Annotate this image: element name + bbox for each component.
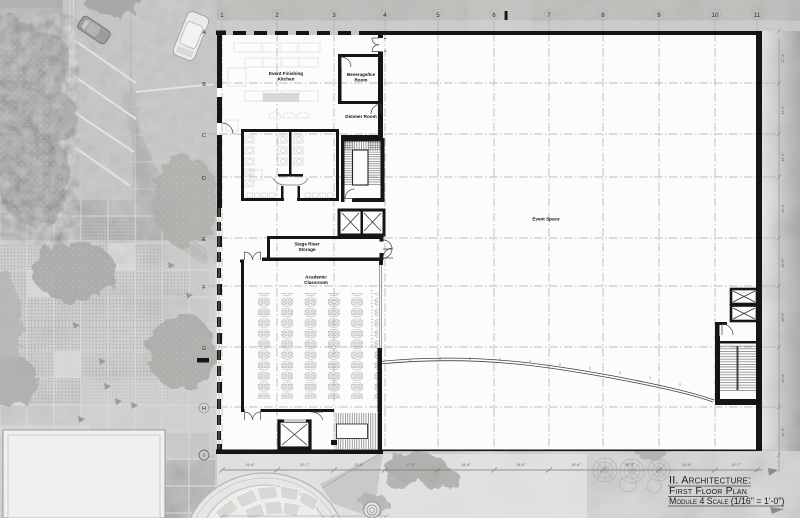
svg-text:13'-6": 13'-6" xyxy=(354,463,364,467)
svg-text:6: 6 xyxy=(492,12,496,19)
svg-text:1: 1 xyxy=(220,12,224,19)
svg-text:Room: Room xyxy=(354,78,367,83)
svg-text:10: 10 xyxy=(712,12,719,19)
svg-text:18'-6": 18'-6" xyxy=(625,463,635,467)
svg-text:Kitchen: Kitchen xyxy=(278,77,295,82)
svg-text:Event Finishing: Event Finishing xyxy=(269,71,303,76)
svg-text:7: 7 xyxy=(547,12,551,19)
svg-text:21'-0": 21'-0" xyxy=(781,203,785,213)
svg-text:16'-9": 16'-9" xyxy=(781,258,785,268)
svg-text:14'-7": 14'-7" xyxy=(731,463,741,467)
svg-text:B: B xyxy=(202,82,206,88)
svg-text:11: 11 xyxy=(754,12,761,19)
svg-text:Academic: Academic xyxy=(305,275,327,280)
svg-text:20'-9": 20'-9" xyxy=(781,312,785,322)
svg-text:3: 3 xyxy=(332,12,336,19)
svg-text:Module 4 Scale (1/16" = 1'-0"): Module 4 Scale (1/16" = 1'-0") xyxy=(669,496,784,506)
svg-text:Classroom: Classroom xyxy=(304,280,328,285)
svg-text:14'-9": 14'-9" xyxy=(781,427,785,437)
svg-text:Dimmer Room: Dimmer Room xyxy=(345,114,376,119)
svg-text:C: C xyxy=(202,133,206,139)
svg-text:18'-6": 18'-6" xyxy=(461,463,471,467)
svg-text:H: H xyxy=(202,406,206,412)
svg-text:A: A xyxy=(202,30,206,36)
svg-text:18'-6": 18'-6" xyxy=(571,463,581,467)
svg-text:Beverage/Ice: Beverage/Ice xyxy=(347,72,376,77)
svg-text:Stage Riser: Stage Riser xyxy=(294,242,319,247)
svg-text:II. Architecture:: II. Architecture: xyxy=(669,475,751,487)
svg-text:G: G xyxy=(202,346,206,352)
svg-text:5: 5 xyxy=(436,12,440,19)
svg-text:12'-0": 12'-0" xyxy=(781,152,785,162)
svg-text:Storage: Storage xyxy=(298,247,316,252)
svg-text:14'-6": 14'-6" xyxy=(682,463,692,467)
svg-text:17'-4": 17'-4" xyxy=(406,463,416,467)
svg-text:8: 8 xyxy=(601,12,605,19)
svg-text:4: 4 xyxy=(383,12,387,19)
svg-text:14'-3": 14'-3" xyxy=(781,105,785,115)
svg-text:17'-3": 17'-3" xyxy=(781,53,785,63)
svg-text:2: 2 xyxy=(275,12,279,19)
svg-text:19'-6": 19'-6" xyxy=(245,463,255,467)
svg-text:20'-6": 20'-6" xyxy=(781,373,785,383)
svg-text:E: E xyxy=(202,237,206,243)
svg-text:9: 9 xyxy=(657,12,661,19)
svg-text:20'-7": 20'-7" xyxy=(300,463,310,467)
svg-text:18'-6": 18'-6" xyxy=(516,463,526,467)
svg-text:I: I xyxy=(203,453,205,459)
svg-text:Event Space: Event Space xyxy=(532,217,560,222)
svg-text:D: D xyxy=(202,176,206,182)
